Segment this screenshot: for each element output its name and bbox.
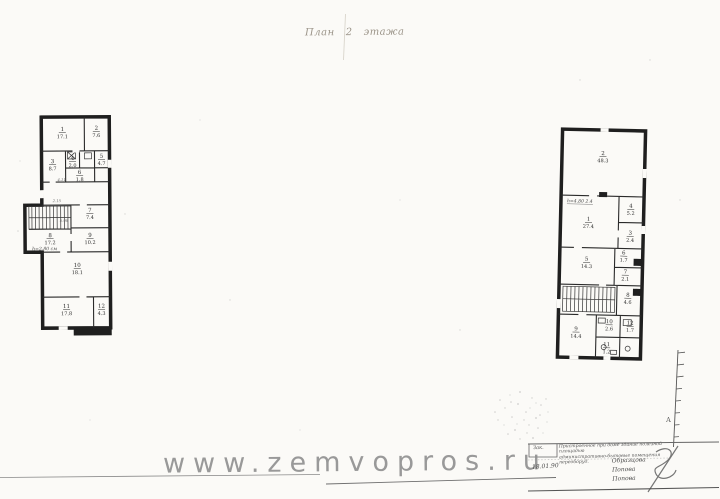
room-area: 8.7 xyxy=(49,166,57,172)
room-number: 11 xyxy=(603,342,610,348)
right-floor-plan: 248.3127.445.232.4514.361.772.184.6914.4… xyxy=(556,127,648,361)
room-number: 3 xyxy=(51,159,55,165)
stray-specks xyxy=(17,59,681,430)
room-area: 17.2 xyxy=(45,240,56,246)
room-area: 48.3 xyxy=(597,158,608,164)
room-number: 1 xyxy=(61,127,65,133)
watermark-text: www.zemvopros.ru xyxy=(163,445,548,479)
room-area: 2.0 xyxy=(69,163,77,169)
room-area: 2.6 xyxy=(605,326,613,332)
edge-ruler: А xyxy=(666,350,685,447)
left-dimension-notes: 5.984.112.15 xyxy=(51,177,68,223)
room-area: 4.3 xyxy=(98,311,106,317)
room-area: 4.7 xyxy=(98,161,106,167)
room-area: 17.1 xyxy=(57,134,68,140)
right-staircase xyxy=(562,286,615,312)
drawing-layer: 117.127.638.742.054.761.877.4817.2910.21… xyxy=(0,0,720,499)
room-number: 12 xyxy=(98,304,105,310)
right-room-labels: 248.3127.445.232.4514.361.772.184.6914.4… xyxy=(570,150,638,356)
room-area: 27.4 xyxy=(583,224,594,230)
stamp-name: Попова xyxy=(612,473,646,483)
room-number: 7 xyxy=(624,270,628,276)
room-area: 7.4 xyxy=(86,215,94,221)
stamp-date: 18.01.90 xyxy=(532,462,559,471)
room-area: 10.2 xyxy=(85,240,96,246)
room-number: 8 xyxy=(626,293,630,299)
scan-speckles xyxy=(494,391,548,440)
room-number: 9 xyxy=(88,233,92,239)
room-number: 2 xyxy=(601,151,605,157)
room-area: 7.6 xyxy=(92,133,100,139)
room-area: 14.3 xyxy=(581,264,592,270)
stamp-names: Образцова Попова Попова xyxy=(612,455,647,483)
room-number: 4 xyxy=(629,204,633,210)
room-area: 1.2 xyxy=(602,349,610,355)
room-area: 1.7 xyxy=(626,328,634,334)
room-number: 9 xyxy=(574,326,578,332)
scanned-floor-plan-sheet: 117.127.638.742.054.761.877.4817.2910.21… xyxy=(0,0,720,499)
room-number: 7 xyxy=(88,208,92,214)
room-number: 10 xyxy=(74,263,82,269)
room-area: 18.1 xyxy=(72,270,83,276)
dimension-note: 5.98 xyxy=(60,218,69,223)
ruler-letter: А xyxy=(666,416,671,424)
room-area: 2.4 xyxy=(626,238,634,244)
room-area: 14.4 xyxy=(570,334,581,340)
room-number: 6 xyxy=(622,251,626,257)
room-area: 2.1 xyxy=(621,277,629,283)
room-number: 12 xyxy=(627,321,634,327)
room-number: 3 xyxy=(628,231,632,237)
room-number: 2 xyxy=(95,126,99,132)
stamp-order-label: Зак. xyxy=(533,445,544,451)
dimension-note: 2.15 xyxy=(52,198,62,203)
room-number: 5 xyxy=(100,154,104,160)
room-area: 1.8 xyxy=(76,177,84,183)
room-number: 10 xyxy=(606,319,614,325)
sheet-title: План 2 этажа xyxy=(305,27,405,39)
title-block: Зак. Пристроенное при доме здание полезн… xyxy=(528,440,720,498)
room-number: 8 xyxy=(48,233,52,239)
room-number: 5 xyxy=(585,257,589,263)
room-number: 11 xyxy=(63,304,70,310)
room-number: 4 xyxy=(71,156,75,162)
left-floor-plan: 117.127.638.742.054.761.877.4817.2910.21… xyxy=(24,117,112,336)
right-chimney-blocks xyxy=(597,192,643,296)
left-stair-height-note: h=2.80 см xyxy=(32,246,57,252)
room-number: 1 xyxy=(587,217,591,223)
room-area: 17.8 xyxy=(61,311,72,317)
dimension-note: 4.11 xyxy=(56,177,66,182)
left-porch-band xyxy=(74,329,112,335)
room-area: 5.2 xyxy=(627,211,635,217)
room-area: 1.7 xyxy=(620,258,628,264)
room-area: 4.6 xyxy=(624,300,632,306)
room-number: 6 xyxy=(78,170,82,176)
